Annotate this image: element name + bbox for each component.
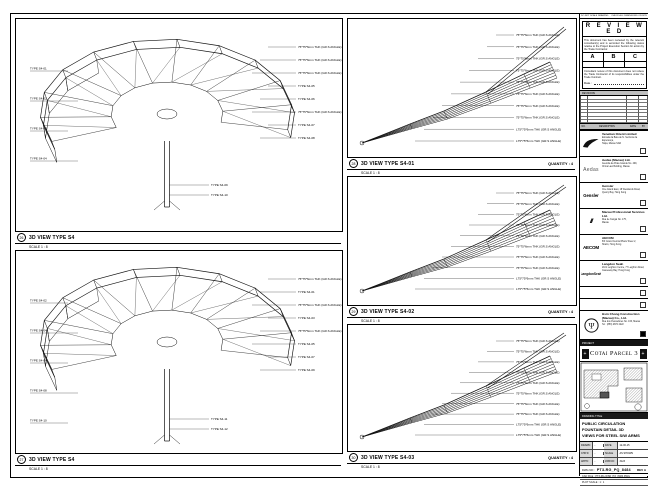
status-checkbox	[640, 200, 646, 206]
svg-text:75*75*6mm THK (GR.S ANGLE): 75*75*6mm THK (GR.S ANGLE)	[298, 303, 341, 307]
view-title: 3D VIEW TYPE S4	[29, 457, 75, 463]
svg-text:L75*75*6mm THK (GR.S ANGLE): L75*75*6mm THK (GR.S ANGLE)	[516, 433, 561, 437]
drawing-title-line: VIEWS FOR STEEL S/W ARMS	[582, 433, 646, 439]
aedas-logo: Aedas	[581, 158, 601, 181]
3d-wireframe-type-s4-01: 75*75*6mm THK (GR.S ANGLE)75*75*6mm THK …	[348, 19, 576, 157]
svg-text:75*75*6mm THK (GR.S ANGLE): 75*75*6mm THK (GR.S ANGLE)	[298, 45, 341, 49]
consultant-address: China Law Building, Macau	[602, 166, 647, 169]
field-label: JOB NO	[604, 458, 618, 465]
view-panel-s4-top: 75*75*6mm THK (GR.S ANGLE)75*75*6mm THK …	[15, 18, 343, 232]
drawing-title: PUBLIC CIRCULATION FOUNTAIN DETAIL 3D VI…	[580, 419, 648, 442]
consultant-row-aecom: AECOM AECOM 8/F Grand Central Plaza Towe…	[580, 234, 648, 260]
svg-text:TYPE S4-04: TYPE S4-04	[30, 329, 47, 333]
consultant-name: AECOM	[602, 236, 647, 240]
consultant-address: Quarry Bay, Hong Kong	[602, 192, 647, 195]
consultant-row-gensler: Gensler Gensler One Island East, 18 West…	[580, 182, 648, 208]
rev-col-date: DATE	[627, 126, 639, 128]
svg-text:TYPE S4-05: TYPE S4-05	[298, 342, 315, 346]
consultant-address: Causeway Bay, Hong Kong	[602, 270, 647, 273]
svg-text:TYPE S4-02: TYPE S4-02	[30, 97, 47, 101]
svg-text:TYPE S4-04: TYPE S4-04	[30, 157, 47, 161]
svg-text:75*75*6mm THK (GR.S ANGLE): 75*75*6mm THK (GR.S ANGLE)	[516, 57, 559, 61]
3d-wireframe-type-s4-03: 75*75*6mm THK (GR.S ANGLE)75*75*6mm THK …	[348, 325, 576, 451]
detail-bubble: 29	[349, 307, 358, 316]
svg-text:75*75*6mm THK (GR.S ANGLE): 75*75*6mm THK (GR.S ANGLE)	[298, 329, 341, 333]
svg-text:75*75*6mm THK (GR.S ANGLE): 75*75*6mm THK (GR.S ANGLE)	[516, 234, 559, 238]
status-checkbox	[640, 302, 646, 308]
svg-text:75*75*6mm THK (GR.S ANGLE): 75*75*6mm THK (GR.S ANGLE)	[298, 277, 341, 281]
contractor-name: Hsin Chong Construction (Macau) Co., Ltd…	[602, 312, 647, 320]
status-b: B	[604, 53, 625, 61]
field-value: -	[593, 460, 604, 463]
stamp-body-text: This document has been reviewed by the r…	[583, 37, 646, 52]
contractor-logo: Ψ	[581, 312, 601, 338]
gensler-logo: Gensler	[581, 184, 601, 207]
svg-text:TYPE S4-01: TYPE S4-01	[298, 290, 315, 294]
stamp-date-row: Date :	[583, 80, 646, 88]
svg-text:L75*75*6mm THK (GR.S ANGLE): L75*75*6mm THK (GR.S ANGLE)	[516, 287, 561, 291]
svg-text:TYPE S4-10: TYPE S4-10	[30, 419, 47, 423]
svg-text:75*75*6mm THK (GR.S ANGLE): 75*75*6mm THK (GR.S ANGLE)	[516, 104, 559, 108]
status-checkbox	[640, 290, 646, 296]
view-panel-s4-02: 75*75*6mm THK (GR.S ANGLE)75*75*6mm THK …	[347, 176, 577, 306]
svg-text:75*75*6mm THK (GR.S ANGLE): 75*75*6mm THK (GR.S ANGLE)	[516, 255, 559, 259]
status-checkrow	[583, 61, 646, 68]
svg-text:TYPE S4-08: TYPE S4-08	[298, 136, 315, 140]
view-quantity: QUANTITY : 4	[548, 456, 575, 460]
svg-text:75*75*6mm THK (GR.S ANGLE): 75*75*6mm THK (GR.S ANGLE)	[298, 71, 341, 75]
rev-col-desc: DESCRIPTION	[587, 126, 627, 128]
svg-text:75*75*6mm THK (GR.S ANGLE): 75*75*6mm THK (GR.S ANGLE)	[516, 212, 559, 216]
svg-text:TYPE S4-07: TYPE S4-07	[298, 355, 315, 359]
svg-text:L75*75*6mm THK (GR.S ANGLE): L75*75*6mm THK (GR.S ANGLE)	[516, 276, 561, 280]
svg-text:75*75*6mm THK (GR.S ANGLE): 75*75*6mm THK (GR.S ANGLE)	[516, 191, 559, 195]
svg-text:75*75*6mm THK (GR.S ANGLE): 75*75*6mm THK (GR.S ANGLE)	[516, 45, 559, 49]
consultant-name: Aedas (Macau) Ltd.	[602, 158, 647, 162]
svg-text:75*75*6mm THK (GR.S ANGLE): 75*75*6mm THK (GR.S ANGLE)	[516, 80, 559, 84]
svg-text:75*75*6mm THK (GR.S ANGLE): 75*75*6mm THK (GR.S ANGLE)	[298, 58, 341, 62]
aecom-logo: AECOM	[581, 236, 601, 259]
svg-text:L75*75*6mm THK (GR.S ANGLE): L75*75*6mm THK (GR.S ANGLE)	[516, 139, 561, 143]
field-label: CHK'D	[580, 450, 593, 457]
note-left: DO NOT SCALE DRAWING	[581, 15, 608, 17]
field-value: AS SHOWN	[618, 452, 648, 455]
svg-text:Ψ: Ψ	[588, 321, 594, 330]
svg-text:75*75*6mm THK (GR.S ANGLE): 75*75*6mm THK (GR.S ANGLE)	[516, 244, 559, 248]
consultant-row-aedas: Aedas Aedas (Macau) Ltd. Avenida da Prai…	[580, 156, 648, 182]
svg-text:75*75*6mm THK (GR.S ANGLE): 75*75*6mm THK (GR.S ANGLE)	[516, 202, 559, 206]
svg-text:75*75*6mm THK (GR.S ANGLE): 75*75*6mm THK (GR.S ANGLE)	[516, 381, 559, 385]
consultant-row-langdonseah: LangdonSeah Langdon Seah 2101 Leighton C…	[580, 260, 648, 286]
svg-text:TYPE S4-06: TYPE S4-06	[30, 359, 47, 363]
empty-consultant-slot	[580, 286, 648, 298]
consultant-name: Venetian Orient Limited	[602, 132, 647, 136]
drawing-sheet: 75*75*6mm THK (GR.S ANGLE)75*75*6mm THK …	[10, 13, 648, 478]
field-value: 3123	[618, 460, 648, 463]
field-row-checked: CHK'D - SCALE AS SHOWN	[580, 450, 648, 458]
stamp-title: R E V I E W E D	[583, 22, 646, 38]
consultant-row-venetian: Venetian Orient Limited Estrada da Baía …	[580, 130, 648, 156]
status-checkbox	[640, 252, 646, 258]
field-row-approved: APP'D - JOB NO 3123	[580, 458, 648, 466]
drawing-number: PT3-RG_PQ_8484	[597, 468, 631, 472]
empty-consultant-slot	[580, 298, 648, 310]
svg-text:75*75*6mm THK (GR.S ANGLE): 75*75*6mm THK (GR.S ANGLE)	[516, 68, 559, 72]
svg-text:TYPE S4-09: TYPE S4-09	[298, 368, 315, 372]
crest-icon	[640, 349, 647, 359]
view-scale: SCALE 1 : 8	[361, 171, 575, 175]
crest-icon	[582, 349, 589, 359]
view-title-block-4: 29 3D VIEW TYPE S4-02 QUANTITY : 4 SCALE…	[347, 306, 575, 323]
3d-wireframe-type-s4: 75*75*6mm THK (GR.S ANGLE)TYPE S4-0175*7…	[16, 251, 342, 453]
contractor-row: Ψ Hsin Chong Construction (Macau) Co., L…	[580, 310, 648, 339]
plot-scale-row: PLOT SCALE : 1 : 1	[580, 480, 648, 486]
sheet-notes: DO NOT SCALE DRAWING CHECK ALL DIMENSION…	[580, 14, 648, 19]
project-bar: PROJECT	[580, 339, 648, 346]
field-label: DRAWN	[580, 442, 593, 449]
contractor-address: Tel : (853) 2872 2222	[602, 324, 647, 327]
svg-text:TYPE S4-07: TYPE S4-07	[298, 123, 315, 127]
svg-text:75*75*6mm THK (GR.S ANGLE): 75*75*6mm THK (GR.S ANGLE)	[516, 391, 559, 395]
svg-text:75*75*6mm THK (GR.S ANGLE): 75*75*6mm THK (GR.S ANGLE)	[516, 92, 559, 96]
3d-wireframe-type-s4: 75*75*6mm THK (GR.S ANGLE)75*75*6mm THK …	[16, 19, 342, 231]
svg-text:TYPE S4-08: TYPE S4-08	[30, 389, 47, 393]
status-c: C	[625, 53, 646, 61]
rev-col-no: NO.	[580, 126, 587, 128]
svg-text:TYPE S4-02: TYPE S4-02	[30, 299, 47, 303]
revision-badge: REV A	[637, 468, 646, 472]
status-checkbox	[640, 148, 646, 154]
view-title: 3D VIEW TYPE S4-02	[361, 309, 414, 315]
view-scale: SCALE 1 : 8	[361, 319, 575, 323]
svg-text:TYPE S4-10: TYPE S4-10	[211, 193, 228, 197]
title-block: DO NOT SCALE DRAWING CHECK ALL DIMENSION…	[579, 14, 648, 476]
svg-text:TYPE S4-05: TYPE S4-05	[298, 84, 315, 88]
view-title: 3D VIEW TYPE S4	[29, 235, 75, 241]
svg-text:75*75*6mm THK (GR.S ANGLE): 75*75*6mm THK (GR.S ANGLE)	[516, 116, 559, 120]
view-title-block-3: 28 3D VIEW TYPE S4-01 QUANTITY : 4 SCALE…	[347, 158, 575, 175]
drawing-number-label: DWG NO :	[582, 469, 595, 472]
project-title-banner: Cotai Parcel 3	[580, 346, 648, 362]
date-label: Date :	[584, 81, 592, 85]
svg-text:75*75*6mm THK (GR.S ANGLE): 75*75*6mm THK (GR.S ANGLE)	[516, 350, 559, 354]
stamp-note-text: Consultant review of this document does …	[583, 68, 646, 80]
svg-text:TYPE S4-01: TYPE S4-01	[30, 67, 47, 71]
status-a: A	[583, 53, 604, 61]
field-value: -	[593, 444, 604, 447]
svg-text:TYPE S4-06: TYPE S4-06	[298, 97, 315, 101]
svg-text:75*75*6mm THK (GR.S ANGLE): 75*75*6mm THK (GR.S ANGLE)	[516, 360, 559, 364]
consultant-name: Macau Professional Services Ltd.	[602, 210, 647, 218]
svg-text:TYPE S4-03: TYPE S4-03	[30, 127, 47, 131]
venetian-lion-logo	[581, 132, 601, 155]
field-value: 12-06-15	[618, 444, 648, 447]
date-fill-line	[594, 81, 644, 85]
svg-text:75*75*6mm THK (GR.S ANGLE): 75*75*6mm THK (GR.S ANGLE)	[516, 223, 559, 227]
svg-text:75*75*6mm THK (GR.S ANGLE): 75*75*6mm THK (GR.S ANGLE)	[516, 33, 559, 37]
view-quantity: QUANTITY : 4	[548, 310, 575, 314]
view-title-block-5: 30 3D VIEW TYPE S4-03 QUANTITY : 4 SCALE…	[347, 452, 575, 469]
svg-text:L75*75*6mm THK (GR.S ANGLE): L75*75*6mm THK (GR.S ANGLE)	[516, 423, 561, 427]
view-title: 3D VIEW TYPE S4-01	[361, 161, 414, 167]
svg-text:75*75*6mm THK (GR.S ANGLE): 75*75*6mm THK (GR.S ANGLE)	[298, 110, 341, 114]
field-label: SCALE	[604, 450, 618, 457]
svg-text:75*75*6mm THK (GR.S ANGLE): 75*75*6mm THK (GR.S ANGLE)	[516, 402, 559, 406]
field-label: DATE	[604, 442, 618, 449]
mps-logo: ///	[581, 210, 601, 233]
detail-bubble: 28	[349, 159, 358, 168]
view-title-block-1: 26 3D VIEW TYPE S4 SCALE 1 : 8	[15, 232, 341, 249]
detail-bubble: 30	[349, 453, 358, 462]
review-stamp: R E V I E W E D This document has been r…	[582, 21, 647, 89]
svg-text:75*75*6mm THK (GR.S ANGLE): 75*75*6mm THK (GR.S ANGLE)	[516, 412, 559, 416]
rev-col-by: BY	[639, 126, 648, 128]
consultant-address: Shatin, Hong Kong	[602, 244, 647, 247]
svg-text:TYPE S4-11: TYPE S4-11	[211, 417, 228, 421]
status-checkbox	[640, 174, 646, 180]
status-checkbox-filled	[640, 331, 646, 337]
svg-text:TYPE S4-03: TYPE S4-03	[298, 316, 315, 320]
detail-bubble: 27	[17, 455, 26, 464]
field-row-drawn: DRAWN - DATE 12-06-15	[580, 442, 648, 450]
view-quantity: QUANTITY : 4	[548, 162, 575, 166]
consultant-name: Langdon Seah	[602, 262, 647, 266]
key-plan	[580, 362, 648, 413]
view-panel-s4-03: 75*75*6mm THK (GR.S ANGLE)75*75*6mm THK …	[347, 324, 577, 452]
view-scale: SCALE 1 : 8	[29, 467, 341, 471]
view-scale: SCALE 1 : 8	[361, 465, 575, 469]
view-panel-s4-bottom: 75*75*6mm THK (GR.S ANGLE)TYPE S4-0175*7…	[15, 250, 343, 454]
svg-text:TYPE S4-09: TYPE S4-09	[211, 183, 228, 187]
view-panel-s4-01: 75*75*6mm THK (GR.S ANGLE)75*75*6mm THK …	[347, 18, 577, 158]
svg-text:75*75*6mm THK (GR.S ANGLE): 75*75*6mm THK (GR.S ANGLE)	[516, 339, 559, 343]
svg-text:TYPE S4-12: TYPE S4-12	[211, 427, 228, 431]
note-right: CHECK ALL DIMENSIONS ON SITE	[611, 15, 647, 17]
field-label: APP'D	[580, 458, 593, 465]
drawing-number-row: DWG NO : PT3-RG_PQ_8484 REV A	[580, 466, 648, 474]
consultant-address: Macau	[602, 222, 647, 225]
status-checkbox	[640, 278, 646, 284]
consultant-row-mps: /// Macau Professional Services Ltd. Rua…	[580, 208, 648, 234]
status-columns: A B C	[583, 52, 646, 61]
view-title-block-2: 27 3D VIEW TYPE S4 SCALE 1 : 8	[15, 454, 341, 471]
detail-bubble: 26	[17, 233, 26, 242]
3d-wireframe-type-s4-02: 75*75*6mm THK (GR.S ANGLE)75*75*6mm THK …	[348, 177, 576, 305]
consultant-address: Taipa, Macau SAR	[602, 143, 647, 146]
view-scale: SCALE 1 : 8	[29, 245, 341, 249]
revision-table: NO. DESCRIPTION DATE BY	[580, 96, 648, 130]
project-title: Cotai Parcel 3	[589, 350, 640, 357]
view-title: 3D VIEW TYPE S4-03	[361, 455, 414, 461]
svg-text:75*75*6mm THK (GR.S ANGLE): 75*75*6mm THK (GR.S ANGLE)	[516, 370, 559, 374]
revision-table-header: NO. DESCRIPTION DATE BY	[580, 123, 648, 130]
consultant-name: Gensler	[602, 184, 647, 188]
svg-text:75*75*6mm THK (GR.S ANGLE): 75*75*6mm THK (GR.S ANGLE)	[516, 266, 559, 270]
svg-text:L75*75*6mm THK (GR.S ANGLE): L75*75*6mm THK (GR.S ANGLE)	[516, 127, 561, 131]
langdon-seah-logo: LangdonSeah	[581, 262, 601, 285]
status-checkbox	[640, 226, 646, 232]
field-value: -	[593, 452, 604, 455]
